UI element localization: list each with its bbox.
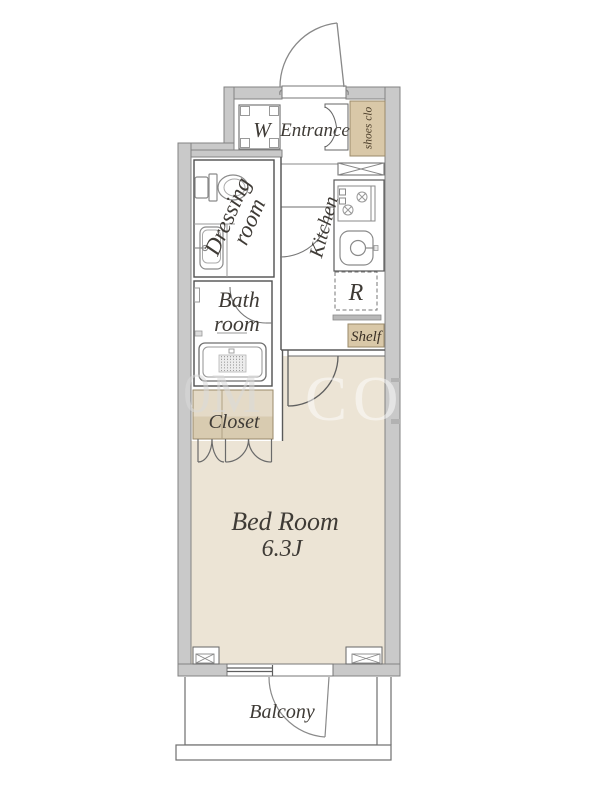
svg-text:0M: 0M bbox=[183, 363, 261, 425]
svg-text:Balcony: Balcony bbox=[249, 701, 315, 723]
svg-text:shoes clo: shoes clo bbox=[363, 107, 375, 150]
svg-text:CO: CO bbox=[305, 364, 405, 434]
svg-text:Shelf: Shelf bbox=[351, 329, 383, 345]
svg-text:W: W bbox=[253, 118, 273, 142]
svg-text:6.3J: 6.3J bbox=[262, 536, 304, 562]
svg-text:Entrance: Entrance bbox=[279, 120, 350, 141]
svg-text:room: room bbox=[214, 311, 260, 336]
svg-text:Bath: Bath bbox=[218, 287, 260, 312]
svg-text:Bed Room: Bed Room bbox=[231, 507, 339, 536]
svg-text:R: R bbox=[348, 280, 364, 306]
